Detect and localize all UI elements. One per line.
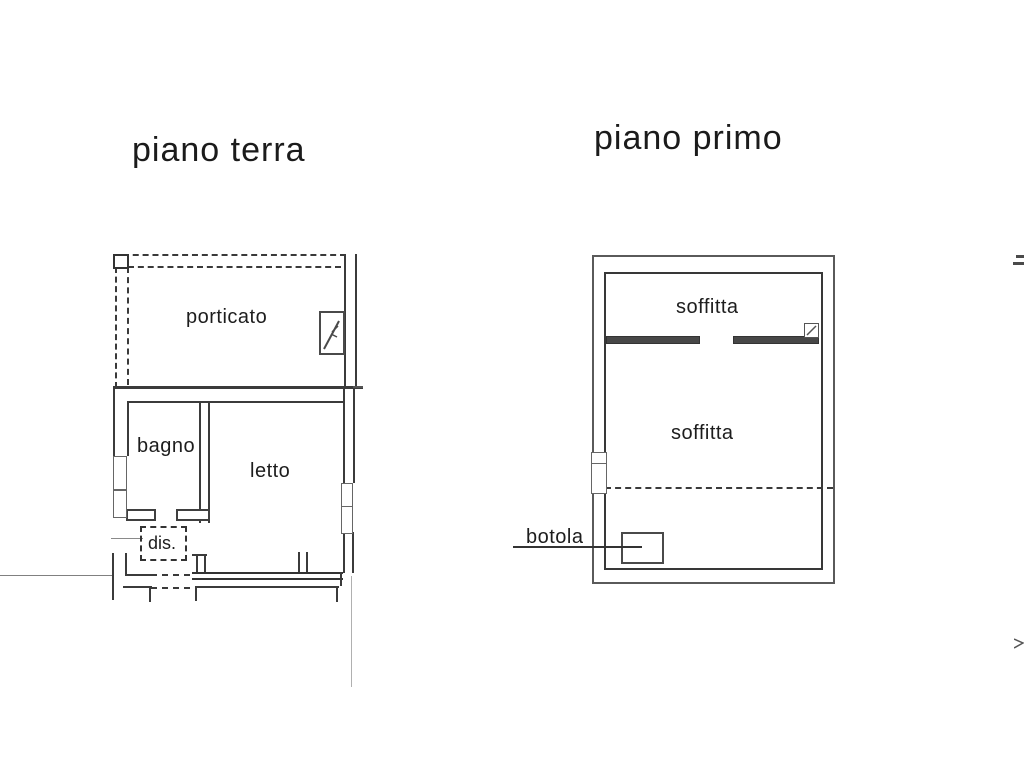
wall-letto-bottom-stub	[340, 572, 342, 586]
plan-title-piano-terra: piano terra	[132, 131, 306, 170]
window-left-1	[113, 456, 127, 490]
step-edge-hook-right	[336, 586, 338, 602]
wall-bagno-bottom-right	[176, 509, 210, 521]
porch-pillar	[113, 254, 129, 269]
window-primo-left	[591, 452, 607, 494]
wall-stub-dis-tick	[192, 554, 207, 556]
door-swing-icon	[321, 313, 343, 353]
wall-porch-bottom-outer	[113, 386, 363, 389]
window-left-2	[113, 490, 127, 518]
door-sill-line	[111, 538, 143, 539]
room-label-soffitta-2: soffitta	[671, 422, 734, 445]
wall-rooms-top-inner	[129, 401, 345, 403]
dashed-opening-bottom	[151, 587, 190, 589]
scan-artifact-chevron	[1014, 636, 1024, 650]
wall-left-upper-inner	[127, 401, 129, 456]
room-label-soffitta-1: soffitta	[676, 296, 739, 319]
porch-dashed-edge-top-inner	[128, 266, 341, 268]
door-diagonal-icon	[805, 324, 818, 337]
room-label-dis: dis.	[148, 533, 176, 554]
dashed-opening-top	[151, 574, 190, 576]
porch-dashed-edge-left-inner	[127, 267, 129, 385]
wall-bottom-left-a	[125, 574, 153, 576]
room-label-porticato: porticato	[186, 306, 267, 329]
ground-reference-line	[0, 575, 112, 576]
wall-right-lower	[343, 532, 354, 573]
porch-dashed-edge-top-outer	[113, 254, 346, 256]
wall-bagno-bottom-left	[126, 509, 156, 521]
wall-right-upper	[344, 254, 357, 388]
plan-title-piano-primo: piano primo	[594, 119, 783, 158]
scan-artifact-dash-1	[1016, 255, 1024, 258]
porch-dashed-edge-left-outer	[115, 267, 117, 388]
window-primo-mullion	[592, 463, 606, 464]
door-box	[804, 323, 819, 338]
wall-left-upper-outer	[113, 386, 115, 456]
scan-artifact-dash-2	[1013, 262, 1024, 265]
dashed-height-line	[605, 487, 833, 489]
wall-right-mid	[343, 388, 355, 483]
wall-bottom-left-hook	[149, 586, 151, 602]
wall-letto-bottom	[192, 572, 343, 580]
wall-tick-right	[353, 386, 363, 388]
step-edge-line	[197, 586, 339, 588]
wall-attic-divider-left	[606, 336, 700, 344]
door-swing-box	[319, 311, 345, 355]
room-label-bagno: bagno	[137, 435, 195, 458]
wall-bagno-letto-divider	[199, 401, 210, 523]
faint-scan-line	[351, 576, 352, 687]
window-right	[341, 483, 353, 534]
wall-left-lower-outer	[112, 553, 114, 600]
window-right-mullion	[342, 506, 352, 507]
wall-left-lower-inner	[125, 553, 127, 576]
floorplan-sheet: piano terra porticato bagno dis.	[0, 0, 1024, 768]
step-edge-hook-left	[195, 586, 197, 601]
botola-hatch-rect	[621, 532, 664, 564]
wall-bottom-left-b	[123, 586, 152, 588]
botola-leader-line	[513, 546, 642, 548]
room-label-letto: letto	[250, 460, 290, 483]
